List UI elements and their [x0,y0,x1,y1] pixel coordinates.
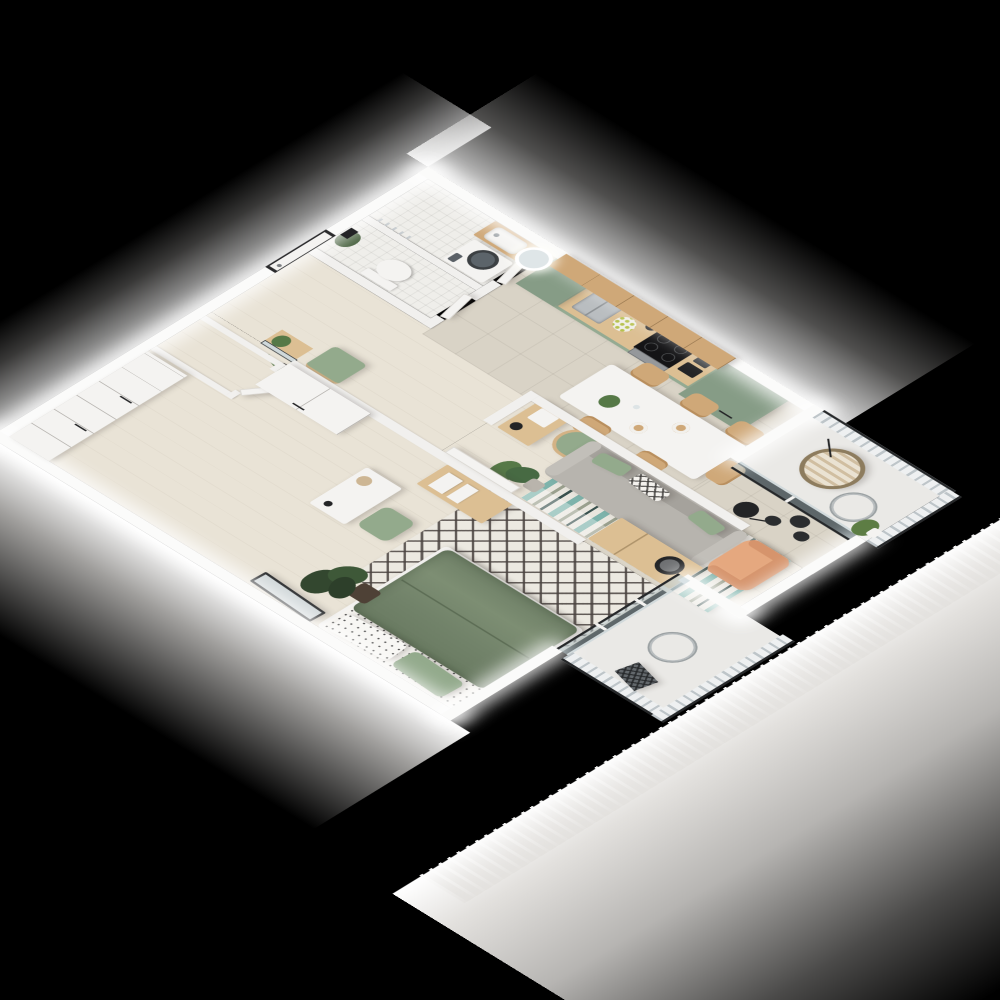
apartment-3d-floorplan-render [0,0,1000,1000]
floorplan [0,167,1000,790]
